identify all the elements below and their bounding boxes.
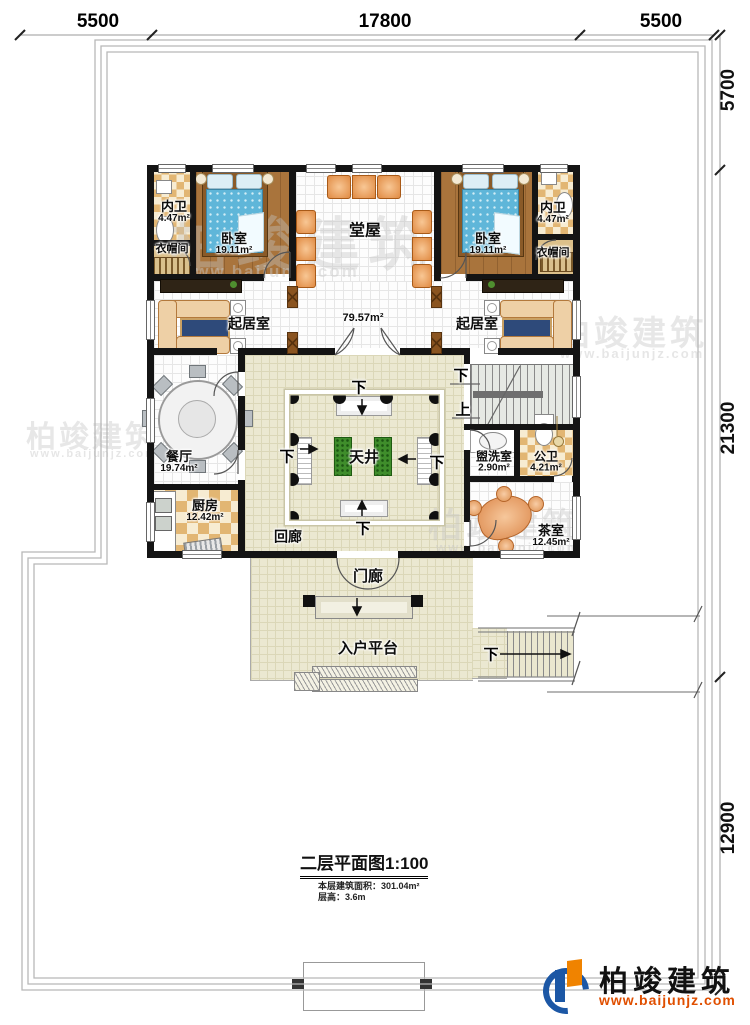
room-label-bath-right: 内卫 4.47m² xyxy=(537,201,569,225)
logo-url: www.baijunjz.com xyxy=(599,992,736,1008)
room-label-platform: 入户平台 xyxy=(338,641,398,657)
label-band-area: 79.57m² xyxy=(343,313,384,325)
room-label-porch: 门廊 xyxy=(353,569,383,585)
room-label-bath-left: 内卫 4.47m² xyxy=(158,200,190,224)
stat-height: 层高：3.6m xyxy=(318,890,366,903)
marker-down: 下 xyxy=(429,452,444,473)
logo-swoosh xyxy=(534,959,599,1024)
room-label-tianjing: 天井 xyxy=(349,450,379,466)
site-boundary xyxy=(22,40,712,990)
marker-down: 下 xyxy=(351,377,366,398)
room-label-gongwei: 公卫 4.21m² xyxy=(530,450,562,473)
outdoor-stair-rails xyxy=(478,606,702,698)
floor-plan-canvas: 5500 17800 5500 5700 21300 12900 柏竣建筑 ww… xyxy=(0,0,750,1025)
room-label-tearoom: 茶室 12.45m² xyxy=(532,524,569,548)
dimension-lines xyxy=(20,35,720,990)
room-label-tangwu: 堂屋 xyxy=(349,224,381,241)
marker-down: 下 xyxy=(279,446,294,467)
logo-block-orange xyxy=(567,959,582,987)
room-label-bedroom-left: 卧室 19.11m² xyxy=(216,232,253,256)
room-label-closet-right: 衣帽间 xyxy=(537,248,570,260)
logo-block-blue xyxy=(555,970,565,1002)
arrows xyxy=(300,399,570,658)
room-label-living-right: 起居室 xyxy=(456,317,498,332)
room-label-kitchen: 厨房 12.42m² xyxy=(186,499,223,523)
marker-stair-up: 上 xyxy=(455,399,470,420)
door-arcs xyxy=(170,240,572,589)
room-label-huilang: 回廊 xyxy=(274,530,302,545)
drawing-title: 二层平面图1:100 xyxy=(300,849,428,879)
logo-icon xyxy=(543,956,595,1016)
room-label-bedroom-right: 卧室 19.11m² xyxy=(470,232,507,256)
room-label-washroom: 盥洗室 2.90m² xyxy=(476,450,512,473)
room-label-closet-left: 衣帽间 xyxy=(156,244,189,256)
room-label-living-left: 起居室 xyxy=(228,317,270,332)
room-label-dining: 餐厅 19.74m² xyxy=(160,450,197,474)
marker-stair-down: 下 xyxy=(453,365,468,386)
marker-outdoor-down: 下 xyxy=(483,644,498,665)
marker-down: 下 xyxy=(355,518,370,539)
